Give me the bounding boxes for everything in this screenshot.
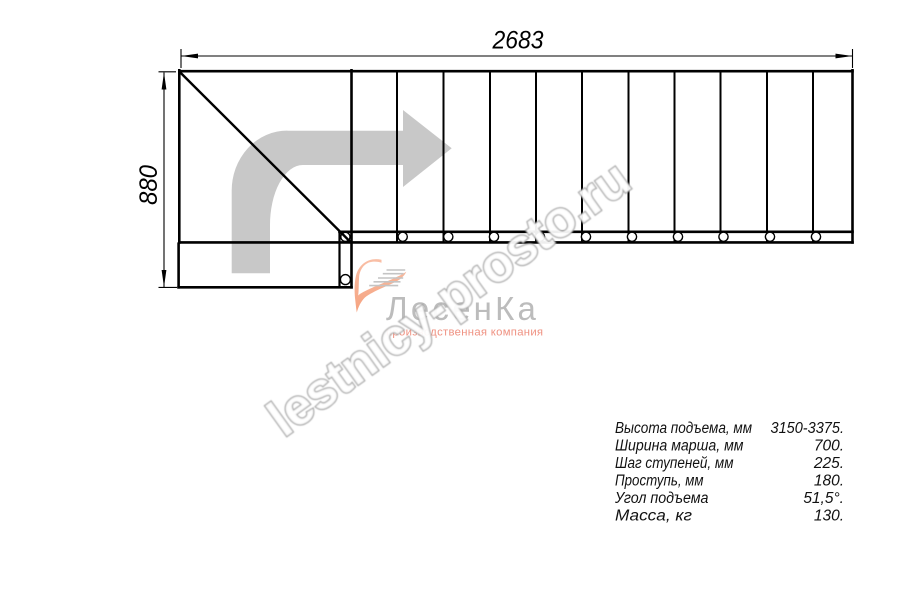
svg-text:Проступь, мм: Проступь, мм xyxy=(615,473,704,490)
svg-text:130.: 130. xyxy=(814,508,844,525)
svg-text:180.: 180. xyxy=(814,473,844,490)
svg-text:Угол подъема: Угол подъема xyxy=(614,490,709,507)
svg-text:2683: 2683 xyxy=(492,27,544,55)
svg-text:51,5°.: 51,5°. xyxy=(803,490,844,507)
svg-text:Масса, кг: Масса, кг xyxy=(615,508,692,525)
svg-text:3150-3375.: 3150-3375. xyxy=(771,420,845,437)
svg-text:225.: 225. xyxy=(813,455,844,472)
svg-text:Высота подъема, мм: Высота подъема, мм xyxy=(615,420,752,437)
svg-text:Ширина марша, мм: Ширина марша, мм xyxy=(615,438,744,455)
svg-text:700.: 700. xyxy=(814,438,844,455)
svg-text:880: 880 xyxy=(135,165,163,205)
svg-text:Шаг ступеней, мм: Шаг ступеней, мм xyxy=(615,455,734,472)
